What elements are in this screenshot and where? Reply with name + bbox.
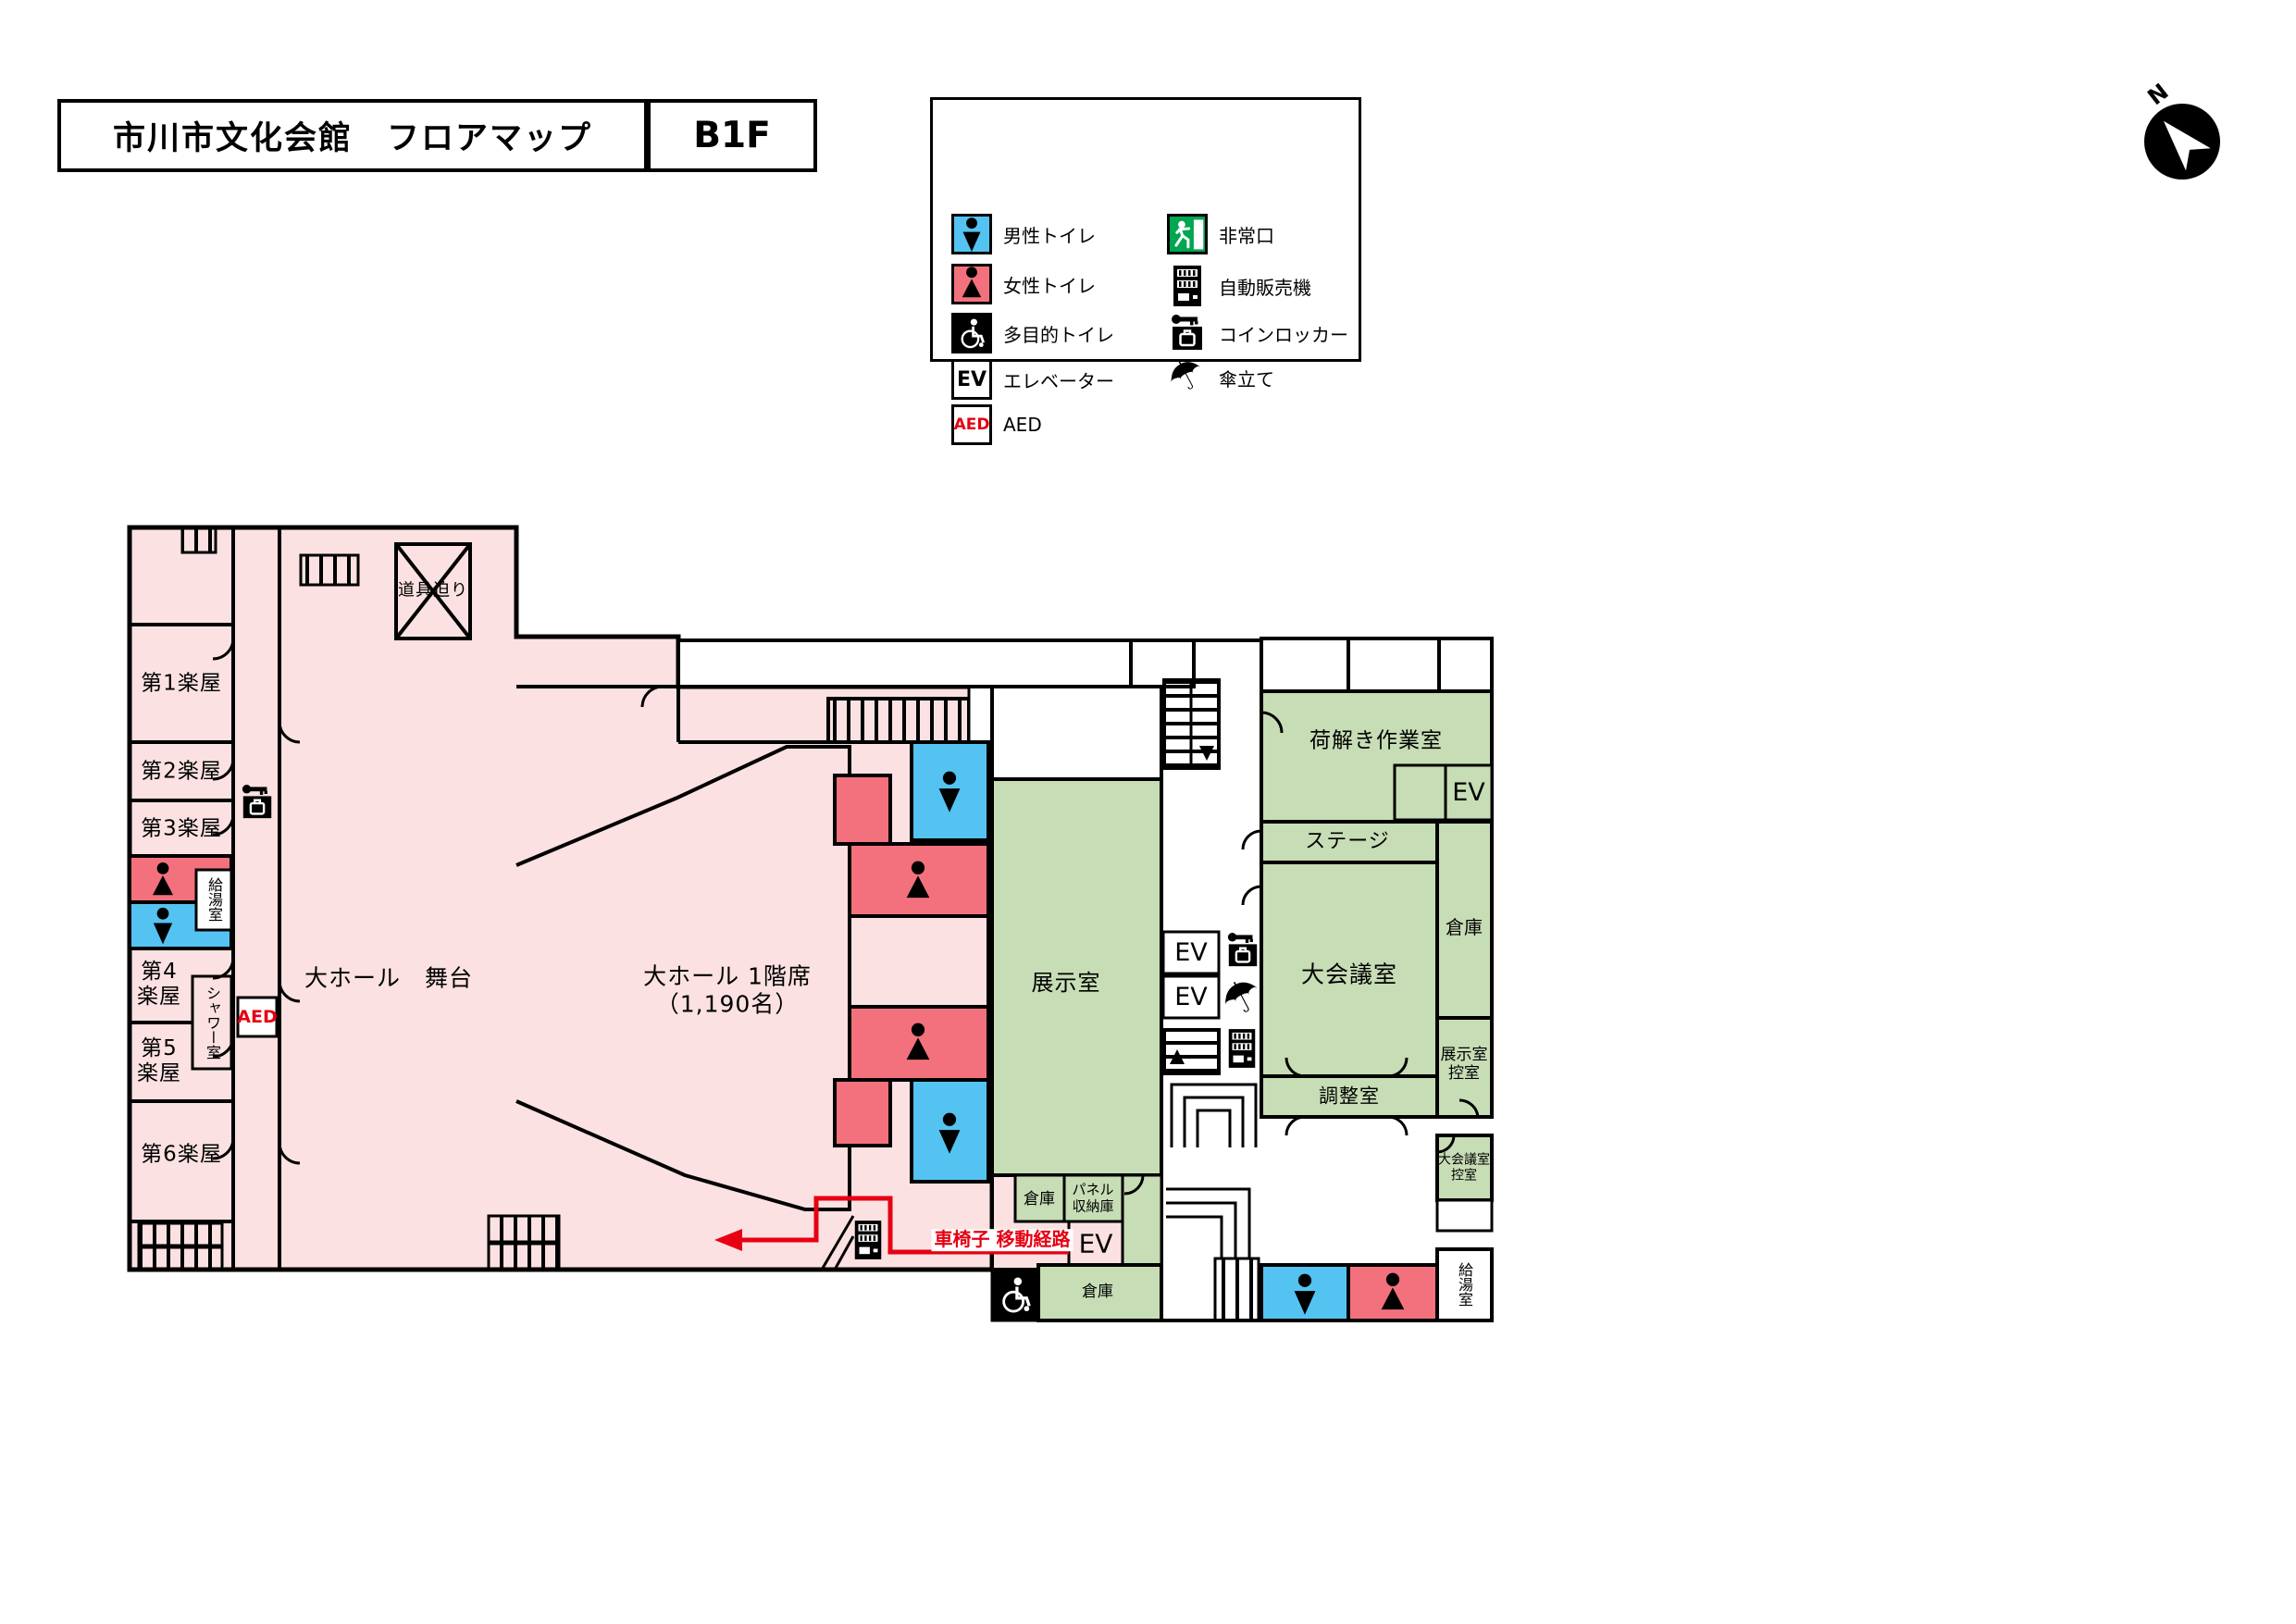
vending-machine-icon — [855, 1221, 882, 1259]
accessible-toilet-room — [992, 1270, 1038, 1320]
room-label-stage: ステージ — [1305, 830, 1390, 854]
room-label-daikaigi: 大会議室 — [1301, 961, 1397, 988]
room-label-shower: シャワー室 — [205, 986, 219, 1060]
room-label-chosei: 調整室 — [1319, 1085, 1380, 1109]
floor-badge-text: B1F — [693, 115, 771, 156]
aed-icon: AED — [951, 404, 992, 445]
room-label-gakuya1: 第1楽屋 — [141, 671, 222, 696]
legend-item-vending-machine: 自動販売機 — [1167, 264, 1311, 308]
coin-locker-icon — [1228, 933, 1257, 966]
elevator-label: EV — [1174, 938, 1208, 968]
room-label-daikaigi-hikae: 大会議室 控室 — [1438, 1152, 1490, 1183]
accessible-toilet-icon — [951, 313, 992, 353]
wheelchair-route-label: 車椅子 移動経路 — [932, 1229, 1074, 1251]
floor-badge: B1F — [647, 99, 817, 172]
room-label-gakuya2: 第2楽屋 — [141, 759, 222, 784]
umbrella-stand-icon — [1167, 355, 1208, 400]
legend-item-female-toilet: 女性トイレ — [951, 264, 1096, 304]
coin-locker-icon — [1167, 311, 1208, 355]
room-label-dogu-seri: 道具迫り — [398, 580, 468, 600]
north-arrow-icon — [2144, 104, 2220, 180]
legend-item-male-toilet: 男性トイレ — [951, 214, 1096, 254]
room-label-tenjishitsu: 展示室 — [1032, 970, 1101, 996]
legend-item-accessible-toilet: 多目的トイレ — [951, 313, 1114, 353]
room-label-soko-mid: 倉庫 — [1024, 1190, 1055, 1209]
emergency-exit-icon — [1167, 214, 1208, 254]
legend-item-aed: AED AED — [951, 404, 1042, 445]
elevator-label: EV — [1174, 983, 1208, 1012]
male-toilet-icon — [951, 214, 992, 254]
room-label-gakuya3: 第3楽屋 — [141, 816, 222, 841]
room-label-soko-right: 倉庫 — [1446, 917, 1483, 939]
legend: 男性トイレ 女性トイレ 多目的トイレ EV エレベーター AED AED 非常口 — [930, 97, 1361, 362]
room-label-niotoki: 荷解き作業室 — [1309, 728, 1443, 753]
legend-item-umbrella-stand: 傘立て — [1167, 355, 1274, 400]
room-label-gakuya4: 第4 楽屋 — [137, 960, 181, 1010]
vending-machine-icon — [1167, 264, 1208, 308]
room-label-gakuya6: 第6楽屋 — [141, 1142, 222, 1167]
vending-machine-icon — [1229, 1029, 1256, 1068]
room-label-tenji-hikae: 展示室 控室 — [1441, 1046, 1488, 1083]
floor-map-page: ☂ — [0, 0, 2296, 1624]
room-label-gakuya5: 第5 楽屋 — [137, 1036, 181, 1086]
room-label-butai: 大ホール 舞台 — [304, 964, 473, 992]
legend-item-elevator: EV エレベーター — [951, 359, 1114, 400]
room-label-seats: 大ホール 1階席 （1,190名） — [643, 963, 812, 1018]
room-label-panel-shuno: パネル 収納庫 — [1072, 1182, 1113, 1214]
room-label-soko-bottom: 倉庫 — [1082, 1283, 1113, 1301]
page-title: 市川市文化会館 フロアマップ — [57, 99, 648, 172]
room-label-kyuto-right: 給湯室 — [1457, 1262, 1471, 1307]
aed-box-label: AED — [237, 1007, 277, 1027]
legend-item-coin-locker: コインロッカー — [1167, 311, 1348, 355]
room-label-kyuto-left: 給湯室 — [206, 877, 221, 922]
elevator-label: EV — [1079, 1228, 1113, 1258]
legend-item-emergency-exit: 非常口 — [1167, 214, 1274, 254]
page-title-text: 市川市文化会館 フロアマップ — [113, 112, 592, 159]
elevator-icon: EV — [951, 359, 992, 400]
female-toilet-icon — [951, 264, 992, 304]
elevator-label: EV — [1452, 778, 1485, 808]
